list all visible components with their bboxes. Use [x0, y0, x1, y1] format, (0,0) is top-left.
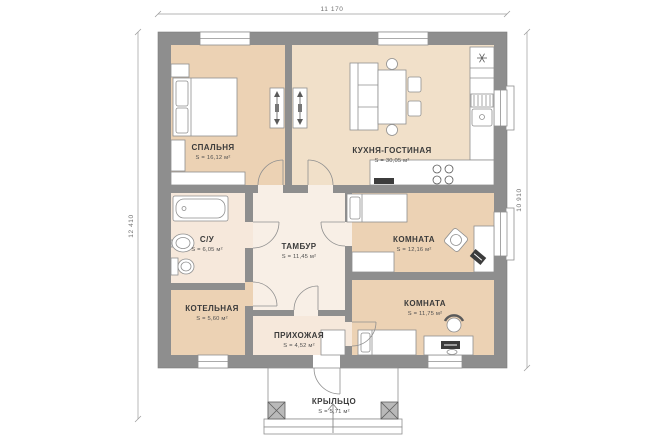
room-area-krylco: S = 5,71 м²	[318, 409, 349, 415]
window-kotelnaya-bottom	[198, 355, 228, 368]
room-area-prihozhaya: S = 4,52 м²	[283, 343, 314, 349]
dimension-left: 12 410	[128, 29, 141, 422]
nightstand	[171, 64, 189, 77]
door-opening-su	[245, 222, 253, 248]
door-opening-spalnya	[258, 185, 283, 193]
room-area-su: S = 6,05 м²	[191, 247, 222, 253]
room-floor-tambur	[253, 193, 345, 310]
dresser	[171, 172, 245, 185]
chair-round	[387, 125, 398, 136]
window-kuhnya-right	[494, 86, 514, 130]
room-label-komnata-2: КОМНАТА	[404, 299, 446, 308]
room-label-kuhnya: КУХНЯ-ГОСТИНАЯ	[352, 146, 431, 155]
floor-plan: СПАЛЬНЯ S = 16,12 м² КУХНЯ-ГОСТИНАЯ S = …	[0, 0, 660, 440]
sofa	[350, 63, 378, 130]
room-area-tambur: S = 11,45 м²	[282, 254, 316, 260]
floor-plan-canvas: СПАЛЬНЯ S = 16,12 м² КУХНЯ-ГОСТИНАЯ S = …	[0, 0, 660, 440]
window-komnata-1-right	[494, 208, 514, 260]
pillow	[176, 108, 188, 133]
kitchen-sink	[471, 94, 493, 126]
door-opening-prihozhaya	[294, 310, 318, 316]
room-label-kotelnaya: КОТЕЛЬНАЯ	[185, 304, 239, 313]
room-label-prihozhaya: ПРИХОЖАЯ	[274, 331, 324, 340]
dim-top-label: 11 170	[321, 6, 344, 13]
porch-column-left	[268, 402, 285, 419]
dishwasher	[374, 178, 394, 184]
vent-mid	[298, 104, 302, 112]
vent-mid	[275, 104, 279, 112]
door-opening-kuhnya	[308, 185, 333, 193]
room-floor-kotelnaya	[171, 290, 245, 355]
dining-table	[378, 70, 406, 124]
door-opening-kotelnaya	[245, 282, 253, 306]
door-opening-komnata-1	[345, 222, 352, 246]
pillow	[361, 333, 370, 352]
door-opening-entry	[313, 355, 340, 368]
window-kuhnya-top	[378, 32, 428, 45]
room-label-tambur: ТАМБУР	[281, 242, 316, 251]
desk	[474, 226, 494, 272]
room-area-komnata-2: S = 11,75 м²	[408, 311, 442, 317]
room-label-su: С/У	[200, 235, 215, 244]
sink-bowl	[472, 109, 492, 126]
chair-round	[387, 59, 398, 70]
room-label-krylco: КРЫЛЬЦО	[312, 397, 356, 406]
dim-right-label: 10 910	[516, 188, 523, 211]
dimension-top: 11 170	[155, 6, 510, 17]
chair	[408, 101, 421, 116]
dim-left-label: 12 410	[128, 214, 135, 237]
room-label-komnata-1: КОМНАТА	[393, 235, 435, 244]
chair-seat	[447, 318, 461, 332]
room-area-spalnya: S = 16,12 м²	[196, 155, 231, 161]
wardrobe	[352, 252, 394, 272]
wardrobe	[171, 140, 185, 171]
room-area-komnata-1: S = 12,16 м²	[397, 247, 432, 253]
porch-column-right	[381, 402, 398, 419]
dimension-right: 10 910	[516, 29, 530, 371]
window-komnata-2-bottom	[428, 355, 462, 368]
room-label-spalnya: СПАЛЬНЯ	[191, 143, 234, 152]
toilet-bowl	[178, 259, 194, 274]
hallway-cabinet	[321, 330, 345, 355]
room-area-kotelnaya: S = 5,60 м²	[196, 316, 227, 322]
window-spalnya-top	[200, 32, 250, 45]
room-area-kuhnya: S = 30,05 м²	[375, 158, 410, 164]
door-opening-komnata-2	[345, 322, 352, 346]
sofa-frame	[350, 63, 378, 130]
chair	[408, 77, 421, 92]
toilet-tank	[171, 258, 178, 275]
pillow	[350, 197, 360, 219]
pillow	[176, 81, 188, 106]
